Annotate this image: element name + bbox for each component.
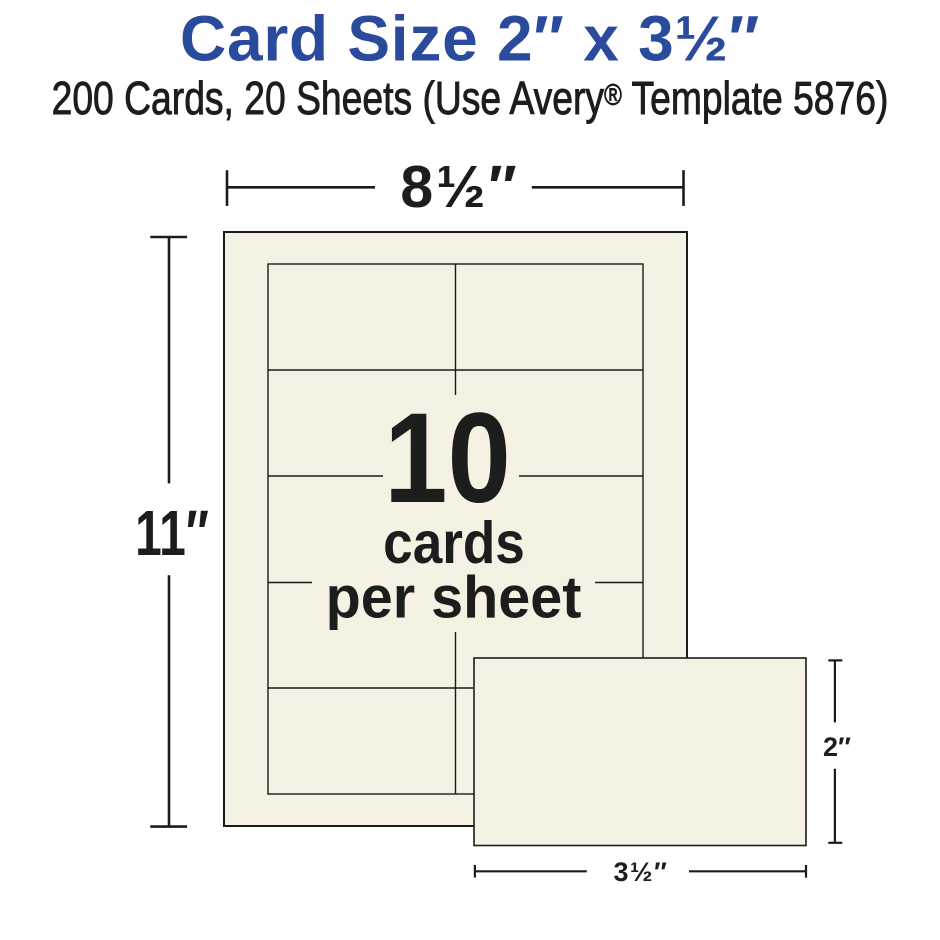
svg-text:3½″: 3½″	[614, 857, 669, 887]
svg-text:2″: 2″	[823, 732, 851, 762]
svg-text:11″: 11″	[135, 497, 209, 568]
svg-text:Card Size 2″ x 3½″: Card Size 2″ x 3½″	[180, 3, 760, 75]
svg-text:per sheet: per sheet	[326, 565, 582, 631]
svg-text:10: 10	[384, 386, 511, 530]
svg-text:8½″: 8½″	[400, 154, 519, 220]
svg-text:200 Cards, 20 Sheets (Use Aver: 200 Cards, 20 Sheets (Use Avery® Templat…	[52, 72, 889, 124]
